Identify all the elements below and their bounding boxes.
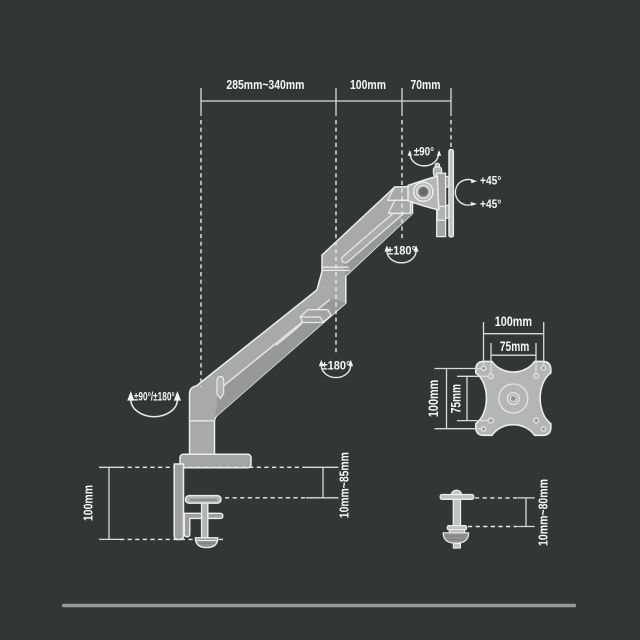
svg-text:75mm: 75mm bbox=[500, 339, 529, 354]
svg-text:100mm: 100mm bbox=[495, 314, 532, 329]
svg-text:100mm: 100mm bbox=[350, 78, 386, 92]
svg-text:70mm: 70mm bbox=[411, 78, 441, 92]
svg-text:±180°: ±180° bbox=[322, 358, 351, 372]
svg-text:±90°/±180°: ±90°/±180° bbox=[134, 392, 175, 404]
svg-text:285mm~340mm: 285mm~340mm bbox=[226, 78, 304, 92]
svg-text:100mm: 100mm bbox=[82, 485, 96, 521]
svg-text:±180°: ±180° bbox=[387, 244, 416, 258]
svg-text:+45°: +45° bbox=[480, 197, 501, 211]
svg-text:+45°: +45° bbox=[480, 174, 501, 188]
svg-text:±90°: ±90° bbox=[414, 145, 435, 159]
svg-text:75mm: 75mm bbox=[449, 384, 464, 413]
svg-text:100mm: 100mm bbox=[426, 380, 441, 417]
svg-text:10mm~85mm: 10mm~85mm bbox=[338, 452, 352, 518]
svg-text:10mm~80mm: 10mm~80mm bbox=[537, 479, 551, 546]
